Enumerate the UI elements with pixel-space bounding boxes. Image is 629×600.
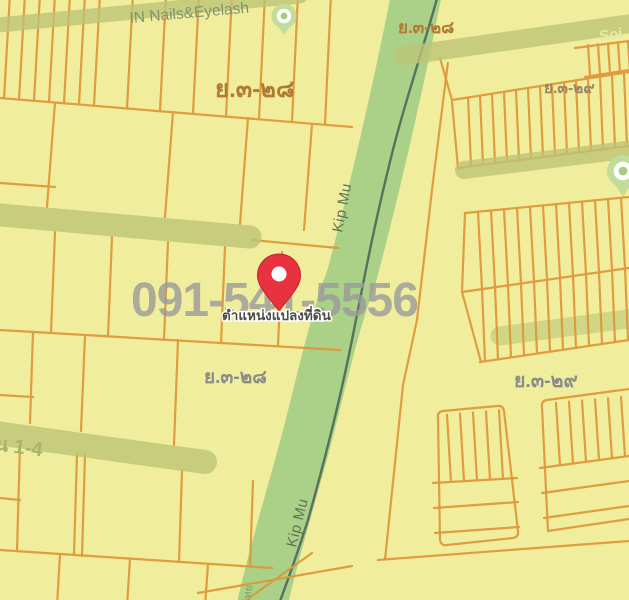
zone-label-top-right: ย.๓-๒๙: [544, 80, 595, 97]
pin-hole: [272, 267, 287, 282]
zone-label-mid-right: ย.๓-๒๙: [514, 370, 578, 392]
zone-label-top-canal: ย.๓-๒๘: [398, 18, 454, 37]
road-label-soi: Soi: [598, 25, 623, 45]
poi-dot: [281, 13, 288, 20]
map-canvas[interactable]: ย.๓-๒๘ ย.๓-๒๘ ย.๓-๒๘ ย.๓-๒๙ ย.๓-๒๙ IN Na…: [0, 0, 629, 600]
pin-caption: ตำแหน่งแปลงที่ดิน: [222, 305, 332, 323]
poi-dot: [619, 167, 628, 176]
canal-label-bottom: ไทย: [240, 585, 255, 600]
zone-label-mid-left: ย.๓-๒๘: [204, 367, 267, 388]
zone-label-top-left: ย.๓-๒๘: [215, 76, 294, 103]
